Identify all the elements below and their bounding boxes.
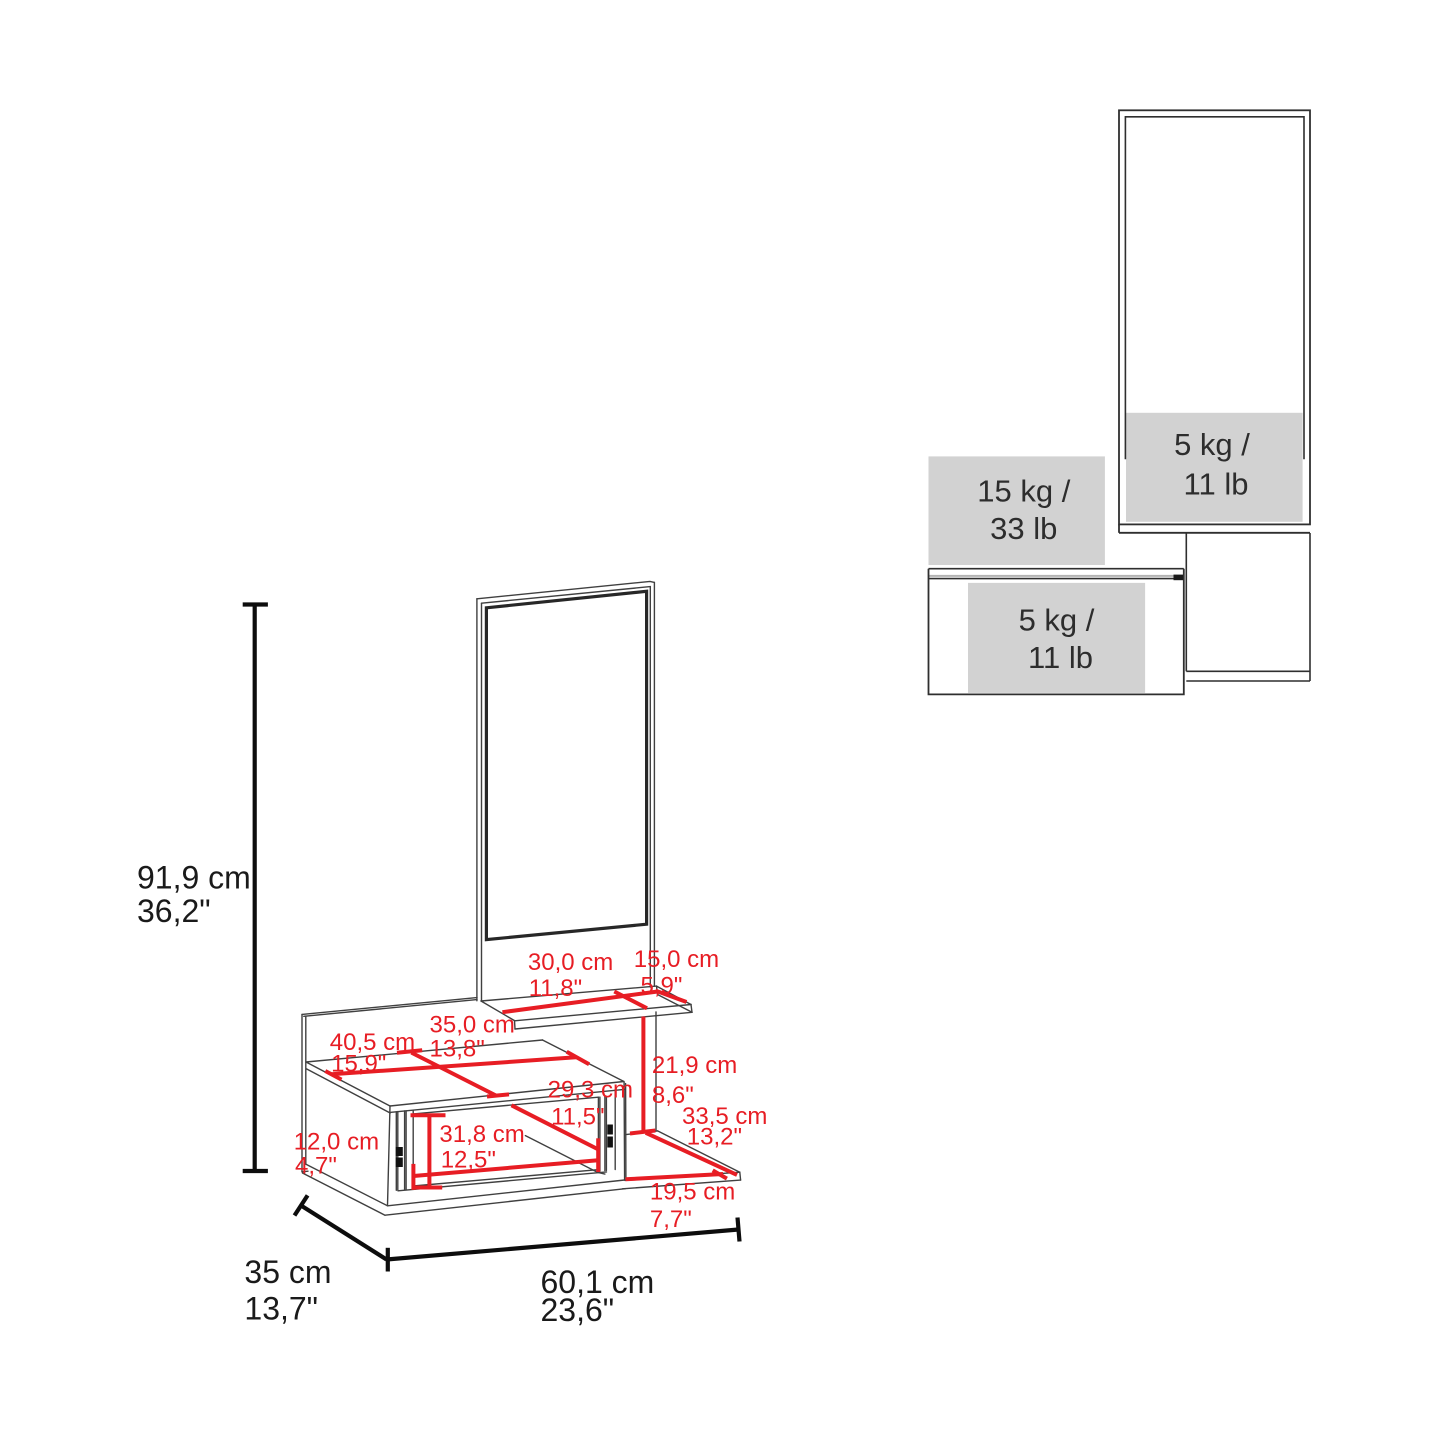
svg-text:5,9": 5,9" — [641, 973, 683, 1000]
svg-text:11 lb: 11 lb — [1184, 467, 1249, 502]
svg-text:7,7": 7,7" — [650, 1206, 692, 1233]
svg-text:33 lb: 33 lb — [990, 511, 1057, 546]
svg-text:15,0 cm: 15,0 cm — [634, 946, 719, 973]
svg-text:5 kg /: 5 kg / — [1019, 603, 1095, 638]
svg-text:4,7": 4,7" — [295, 1153, 337, 1180]
svg-text:11,5": 11,5" — [551, 1104, 604, 1131]
svg-text:35,0 cm: 35,0 cm — [430, 1012, 515, 1039]
svg-text:11,8": 11,8" — [529, 975, 582, 1002]
svg-text:19,5 cm: 19,5 cm — [650, 1178, 735, 1205]
svg-text:13,8": 13,8" — [430, 1036, 485, 1063]
svg-text:13,2": 13,2" — [687, 1123, 742, 1150]
svg-text:12,0 cm: 12,0 cm — [294, 1129, 379, 1156]
svg-text:15,9": 15,9" — [331, 1050, 386, 1077]
svg-text:30,0 cm: 30,0 cm — [528, 949, 613, 976]
svg-text:13,7": 13,7" — [244, 1291, 318, 1327]
svg-text:35 cm: 35 cm — [244, 1254, 331, 1290]
svg-text:21,9 cm: 21,9 cm — [652, 1052, 737, 1079]
svg-text:29,3 cm: 29,3 cm — [548, 1077, 633, 1104]
svg-text:31,8 cm: 31,8 cm — [439, 1121, 524, 1148]
svg-text:36,2": 36,2" — [137, 893, 211, 929]
svg-text:12,5": 12,5" — [441, 1147, 496, 1174]
svg-text:11 lb: 11 lb — [1028, 640, 1093, 675]
svg-text:23,6": 23,6" — [541, 1292, 615, 1328]
svg-text:91,9 cm: 91,9 cm — [137, 860, 251, 896]
svg-text:15 kg /: 15 kg / — [977, 474, 1070, 509]
svg-text:5 kg /: 5 kg / — [1174, 427, 1250, 462]
